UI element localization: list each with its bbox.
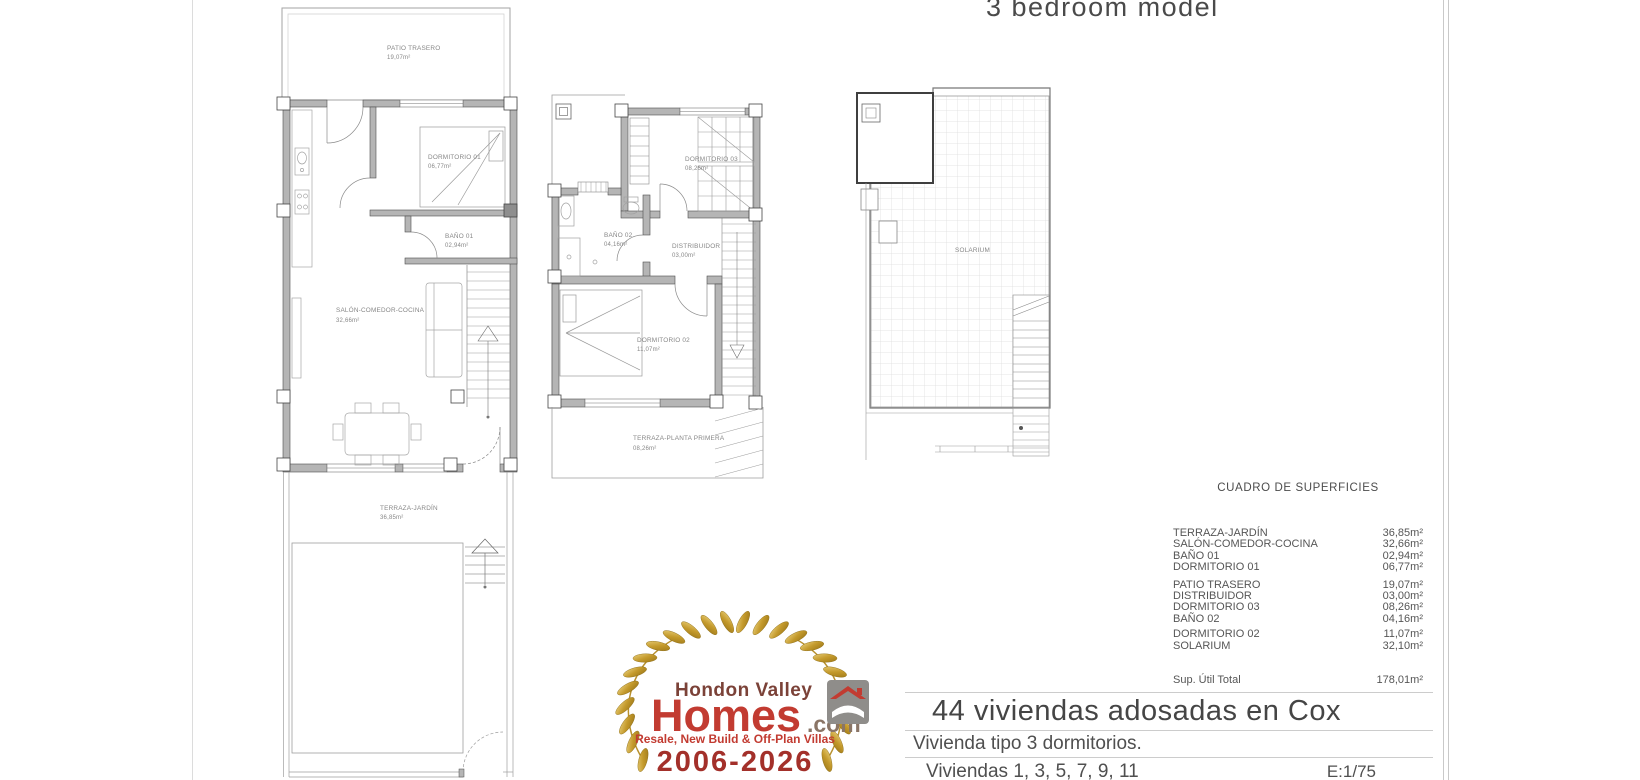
room-label-salon: SALÓN-COMEDOR-COCINA [336,305,425,314]
surface-table: CUADRO DE SUPERFICIES TERRAZA-JARDÍN36,8… [1173,481,1423,687]
surface-label: DORMITORIO 01 [1173,562,1260,573]
room-area-patio-trasero: 19,07m² [387,55,410,61]
room-area-terraza-primera: 08,26m² [633,446,656,452]
surface-value: 04,16m² [1383,614,1423,625]
room-label-dormitorio-03: DORMITORIO 03 [685,156,738,163]
units-list: Viviendas 1, 3, 5, 7, 9, 11 [926,760,1139,780]
solarium-plan: SOLARIUM [845,80,1060,465]
drawing-scale: E:1/75 [1327,760,1376,780]
surface-total-row: Sup. Útil Total178,01m² [1173,674,1423,687]
terraza-planta-primera [552,407,763,478]
table-row: DORMITORIO 0106,77m² [1173,562,1423,573]
surface-value: 32,10m² [1383,641,1423,652]
solarium-labels: SOLARIUM [955,247,990,254]
divider [905,757,1433,758]
room-label-bano-02: BAÑO 02 [604,230,633,239]
patio-trasero-outline [282,8,510,100]
room-area-dormitorio-01: 06,77m² [428,164,451,170]
room-area-dormitorio-03: 08,26m² [685,166,708,172]
room-label-terraza-jardin: TERRAZA-JARDÍN [380,503,438,512]
room-label-bano-01: BAÑO 01 [445,231,474,240]
kitchen-fixtures [292,110,312,267]
first-floor-plan: DORMITORIO 03 08,26m² BAÑO 02 04,16m² DI… [540,80,775,485]
room-area-distribuidor: 03,00m² [672,253,695,259]
door-swings [617,184,707,316]
brand-years: 2006-2026 [585,746,885,779]
stairs [467,265,510,419]
surface-value: 11,07m² [1383,629,1423,640]
surface-label: BAÑO 02 [1173,614,1219,625]
surface-value: 06,77m² [1383,562,1423,573]
room-area-bano-01: 02,94m² [445,243,468,249]
project-title: 44 viviendas adosadas en Cox [905,693,1433,730]
sheet-border-right [1443,0,1444,780]
room-area-salon: 32,66m² [336,318,359,324]
model-title: 3 bedroom model [986,0,1219,23]
room-area-bano-02: 04,16m² [604,242,627,248]
surface-label: SOLARIUM [1173,641,1230,652]
beds-dormitorio-03 [698,117,754,211]
house-hand-icon [827,680,869,724]
brand-logo: Hondon Valley Homes .com Resale, New Bui… [585,608,885,780]
room-label-terraza-primera: TERRAZA-PLANTA PRIMERA [633,435,725,442]
stairs [722,218,756,399]
room-label-dormitorio-02: DORMITORIO 02 [637,337,690,344]
room-label-patio-trasero: PATIO TRASERO [387,45,440,52]
sheet-border-left [192,0,193,780]
room-area-terraza-jardin: 36,85m² [380,515,403,521]
surface-table-title: CUADRO DE SUPERFICIES [1173,481,1423,495]
room-label-distribuidor: DISTRIBUIDOR [672,243,720,250]
brand-tagline: Resale, New Build & Off-Plan Villas [585,732,885,746]
table-row: BAÑO 0204,16m² [1173,614,1423,625]
surface-table-rows: TERRAZA-JARDÍN36,85m² SALÓN-COMEDOR-COCI… [1173,528,1423,687]
ground-floor-plan: PATIO TRASERO 19,07m² DORMITORIO 01 06,7… [270,0,530,780]
room-area-dormitorio-02: 11,07m² [637,347,660,353]
project-subtitle: Vivienda tipo 3 dormitorios. [905,731,1433,757]
room-label-solarium: SOLARIUM [955,247,990,254]
outline [552,95,625,407]
surface-label: DORMITORIO 02 [1173,629,1260,640]
pillars [277,97,517,471]
room-label-dormitorio-01: DORMITORIO 01 [428,154,481,161]
table-row: DORMITORIO 0211,07m² [1173,629,1423,640]
solarium-stairs [1013,295,1049,407]
exterior-walls [283,100,517,472]
walls [552,108,760,407]
table-row: SOLARIUM32,10m² [1173,641,1423,652]
bed-dormitorio-02 [560,290,642,376]
surface-total-value: 178,01m² [1377,674,1423,687]
title-block: 44 viviendas adosadas en Cox Vivienda ti… [905,692,1433,780]
sheet-border-right-inner [1448,0,1449,780]
surface-total-label: Sup. Útil Total [1173,674,1241,687]
wardrobe [630,118,649,184]
plan-sheet: 3 bedroom model [0,0,1640,780]
